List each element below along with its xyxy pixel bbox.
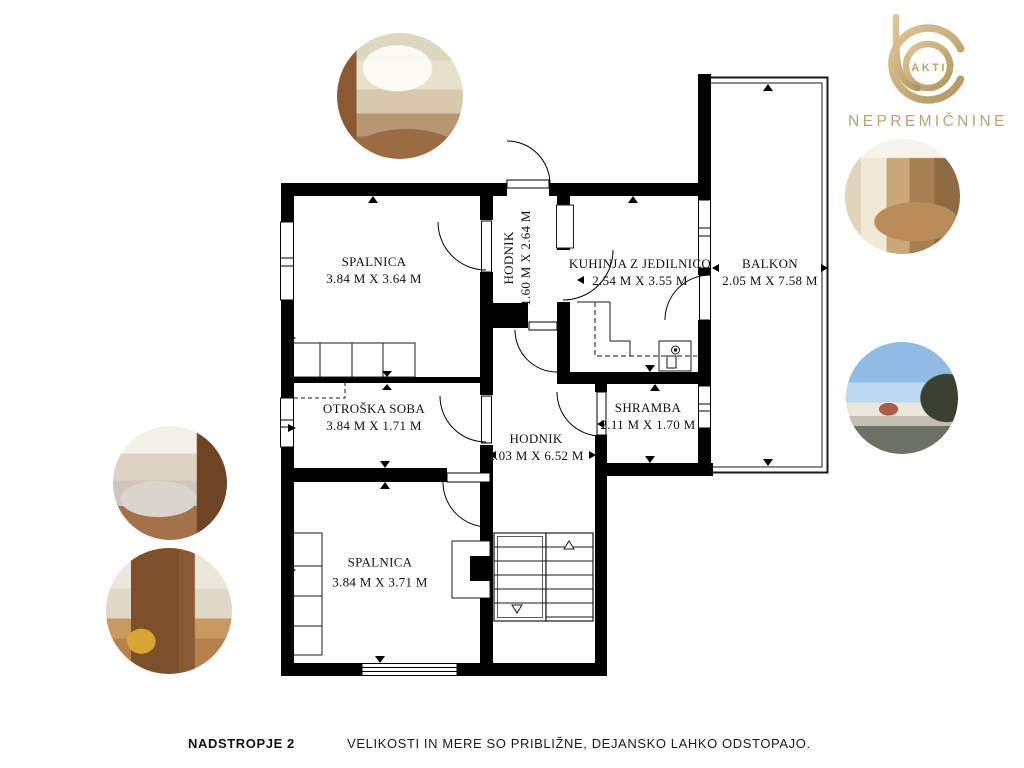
room-dims: 3.84 M X 1.71 M [323,417,425,434]
staircase [494,533,593,621]
window-spalnica-top [281,222,294,300]
room-name: HODNIK [488,430,584,447]
room-dims: 3.84 M X 3.64 M [326,270,422,287]
balcony-view-photo [846,342,958,454]
room-name: BALKON [722,255,818,272]
room-name: KUHINJA Z JEDILNICO [569,255,711,272]
hodnik-radiator [557,205,574,248]
door-leaf-entry-top [507,180,549,188]
floor-label: NADSTROPJE 2 [188,736,295,751]
bedroom-photo-top [337,33,463,159]
wardrobe-room-photo [106,548,232,674]
room-dims: 2.11 M X 1.70 M [600,416,695,433]
door-arc-entry-top [507,141,550,184]
wardrobe-spalnica-top [291,343,415,377]
window-spalnica-bottom [362,664,457,676]
room-name: HODNIK [500,210,517,306]
logo-monogram-icon [892,17,961,100]
kitchen-photo [845,139,960,254]
brand-name: NEPREMIČNINE [848,113,1008,131]
floorplan-page: SPALNICA 3.84 M X 3.64 M HODNIK 1.60 M X… [0,0,1024,768]
room-name: SPALNICA [332,554,428,571]
disclaimer-text: VELIKOSTI IN MERE SO PRIBLIŽNE, DEJANSKO… [347,736,811,751]
room-label-otroska-soba: OTROŠKA SOBA 3.84 M X 1.71 M [323,400,425,434]
door-arc-spalnica-top [438,222,486,270]
window-shramba-balkon [699,386,711,428]
room-label-shramba: SHRAMBA 2.11 M X 1.70 M [600,399,695,433]
agency-logo: AKTIV [868,14,998,118]
otroska-ceiling-dashed [294,383,345,398]
room-dims: 2.03 M X 6.52 M [488,447,584,464]
door-leaf-spalnica-top [482,221,492,272]
room-dims: 2.05 M X 7.58 M [722,272,818,289]
bedroom-photo-left [113,426,227,540]
room-label-spalnica-bottom: SPALNICA 3.84 M X 3.71 M [332,554,428,591]
room-dims: 3.84 M X 3.71 M [332,574,428,591]
chimney [452,541,491,598]
room-label-spalnica-top: SPALNICA 3.84 M X 3.64 M [326,253,422,287]
footer: NADSTROPJE 2 VELIKOSTI IN MERE SO PRIBLI… [188,736,811,751]
door-leaf-spalnica-bottom [447,473,490,482]
room-label-balkon: BALKON 2.05 M X 7.58 M [722,255,818,289]
room-label-hodnik-top: HODNIK 1.60 M X 2.64 M [500,210,534,306]
logo-aktiv-text: AKTIV [911,62,957,74]
room-label-kuhinja: KUHINJA Z JEDILNICO 2.54 M X 3.55 M [569,255,711,289]
room-dims: 2.54 M X 3.55 M [569,272,711,289]
room-dims: 1.60 M X 2.64 M [517,210,534,306]
door-arc-hodnik-strip [515,330,557,372]
room-name: OTROŠKA SOBA [323,400,425,417]
room-label-hodnik-main: HODNIK 2.03 M X 6.52 M [488,430,584,464]
wardrobe-spalnica-bottom [292,533,322,655]
room-name: SHRAMBA [600,399,695,416]
window-otroska [281,398,294,447]
door-arc-otroska [440,396,486,442]
door-leaf-hodnik-strip [529,322,557,330]
room-name: SPALNICA [326,253,422,270]
